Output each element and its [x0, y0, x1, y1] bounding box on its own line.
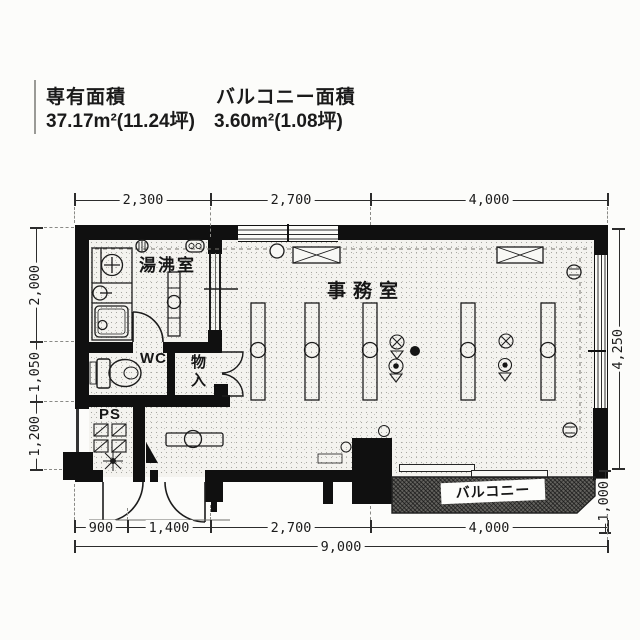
kitchenette-light-fixture [168, 272, 181, 336]
tick [210, 193, 212, 206]
doorbell-icons [318, 426, 390, 464]
ps-valve-icon [103, 451, 123, 471]
toilet-icon [90, 359, 141, 388]
leader [44, 341, 74, 342]
leader [370, 506, 371, 520]
tick [612, 228, 625, 230]
tick [74, 540, 76, 553]
ps-meter-boxes [94, 424, 126, 452]
leader [44, 469, 62, 470]
room-label-wc: WC [140, 350, 167, 367]
storage-double-doors [222, 352, 243, 396]
entry-door-right [165, 482, 205, 522]
dim-bottom-1: 900 [86, 520, 116, 536]
tick [74, 520, 76, 533]
tick [127, 520, 129, 533]
sensor-cluster-right [499, 334, 514, 381]
leader [74, 484, 75, 520]
tick [210, 520, 212, 533]
dim-top-2: 2,700 [268, 192, 315, 208]
tick [607, 193, 609, 206]
tick [607, 540, 609, 553]
leader [607, 207, 608, 223]
ceiling-vent-icon [270, 244, 284, 258]
leader [127, 508, 128, 520]
tick [30, 469, 43, 471]
leader [210, 505, 211, 520]
tick [30, 401, 43, 403]
dim-bottom-3: 2,700 [268, 520, 315, 536]
tick [612, 468, 625, 470]
leader [74, 207, 75, 223]
floor-plan-page: 専有面積 バルコニー面積 37.17m²(11.24坪) 3.60m²(1.08… [0, 0, 640, 640]
leader [44, 401, 74, 402]
tick [30, 227, 43, 229]
dim-left-2: 1,050 [27, 350, 43, 395]
dim-top-1: 2,300 [120, 192, 167, 208]
tick [599, 470, 611, 472]
dim-right-2: 1,000 [596, 479, 612, 524]
tick [30, 341, 43, 343]
dim-top-3: 4,000 [466, 192, 513, 208]
entry-light-fixture [166, 431, 223, 448]
kitchenette-door [133, 312, 163, 342]
leader [607, 515, 608, 540]
entry-door-left [103, 482, 143, 522]
sensor-cluster-left [389, 335, 420, 382]
dim-bottom-4: 4,000 [466, 520, 513, 536]
tick [599, 532, 611, 534]
dim-bottom-total: 9,000 [318, 539, 365, 555]
sprinkler-icon-top [567, 265, 581, 279]
kitchenette-counter [92, 248, 132, 340]
leader [210, 207, 211, 237]
ac-unit-icon-left [293, 247, 340, 263]
room-label-storage: 物入 [187, 354, 208, 390]
tick [370, 193, 372, 206]
tick [74, 193, 76, 206]
dim-right-1: 4,250 [610, 327, 626, 372]
room-label-kitchenette: 湯沸室 [139, 251, 196, 276]
ac-unit-icon-right [497, 247, 543, 263]
dim-left-3: 1,200 [27, 414, 43, 459]
dim-bottom-2: 1,400 [146, 520, 193, 536]
leader [370, 207, 371, 225]
sprinkler-icon-bottom [563, 423, 577, 437]
dim-left-1: 2,000 [27, 263, 43, 308]
tick [370, 520, 372, 533]
ps-corner-wedge [146, 442, 158, 463]
room-label-ps: PS [99, 406, 121, 423]
room-label-office: 事務室 [327, 276, 405, 303]
leader [44, 227, 74, 228]
